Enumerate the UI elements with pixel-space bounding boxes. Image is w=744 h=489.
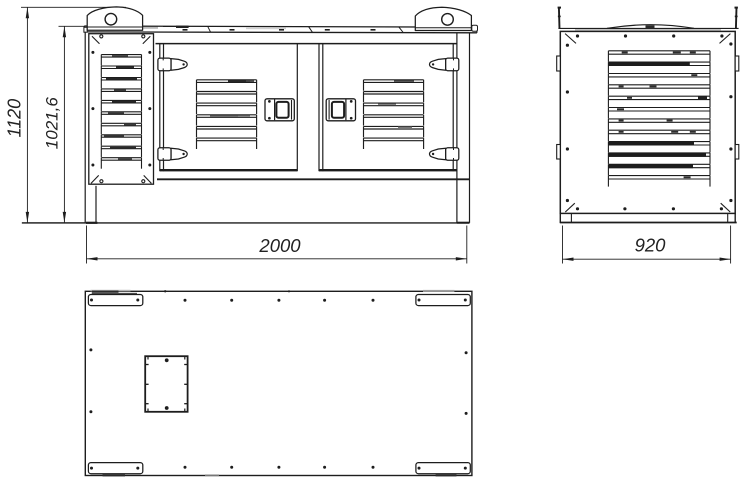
svg-text:1021,6: 1021,6 [42,97,61,150]
svg-text:2000: 2000 [258,235,301,256]
svg-text:1120: 1120 [4,99,24,138]
svg-text:920: 920 [635,235,667,256]
